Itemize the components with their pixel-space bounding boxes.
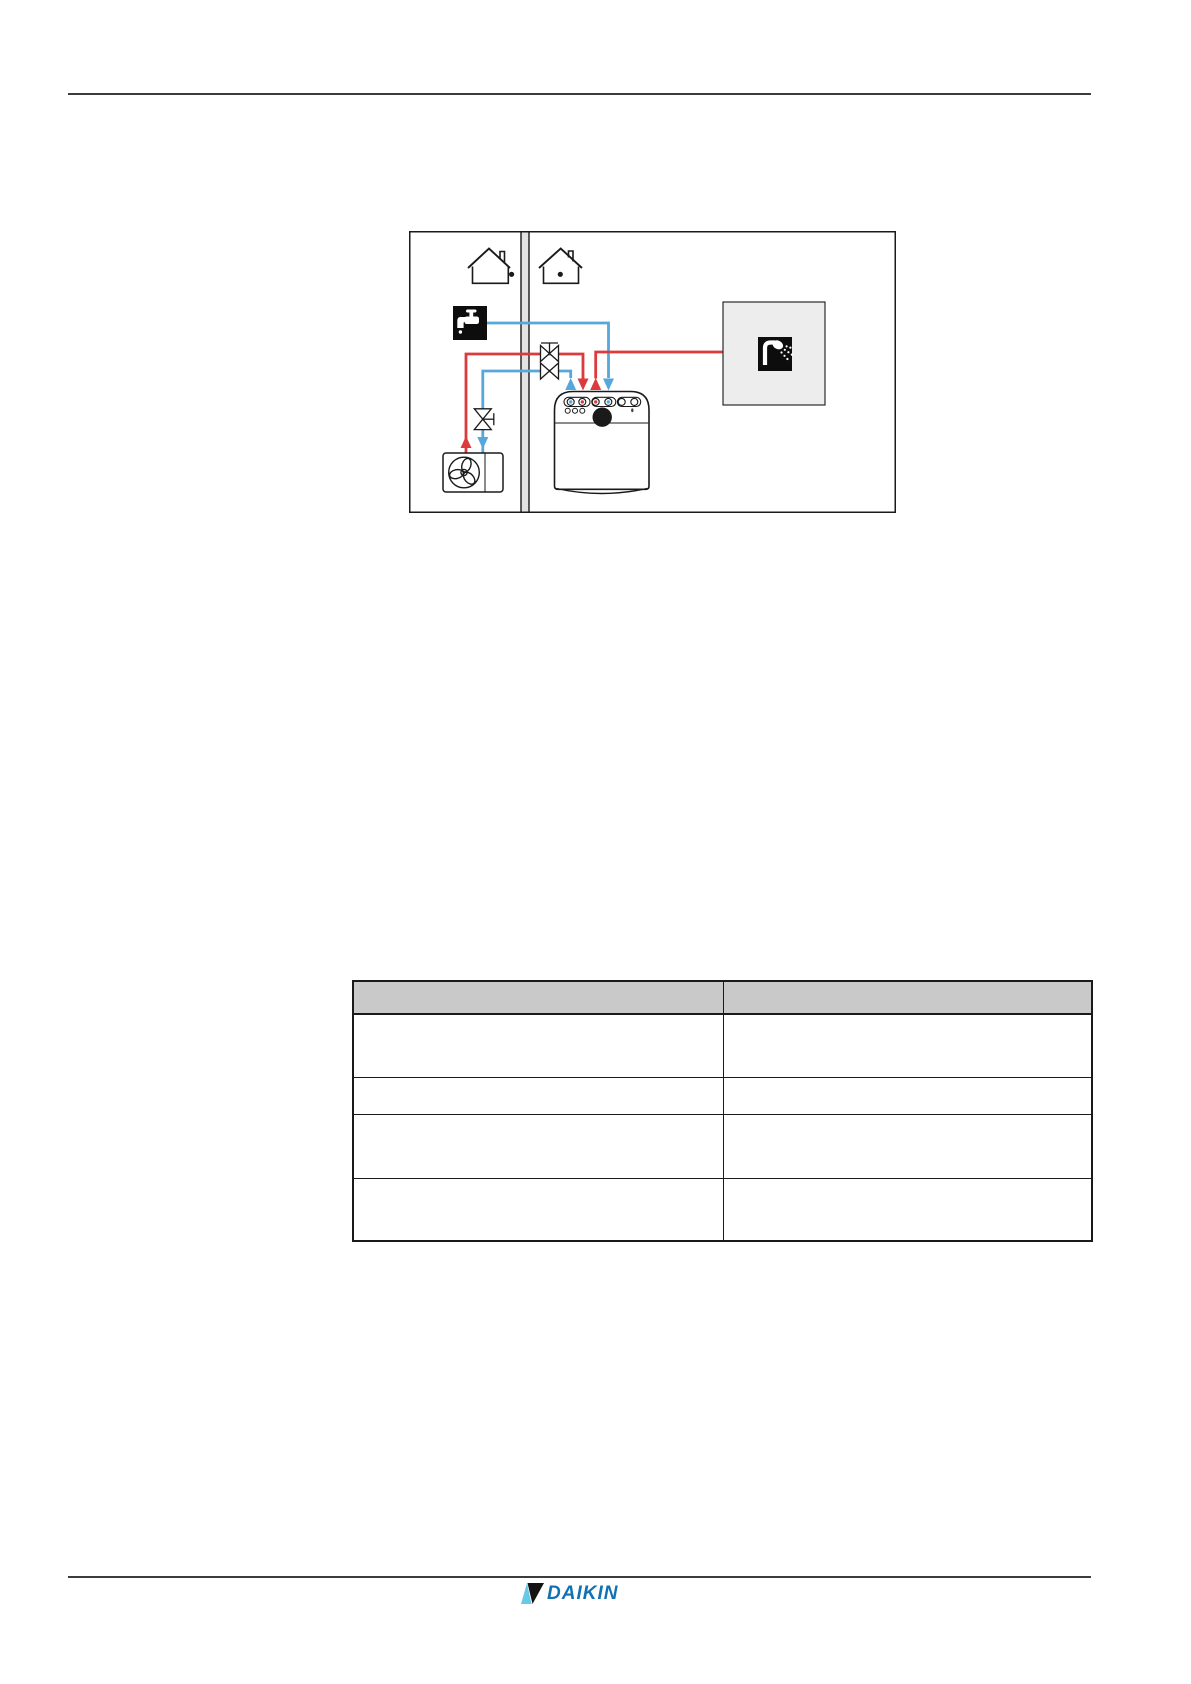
table-cell [353,1114,723,1178]
spec-table [352,980,1093,1242]
daikin-logo-mark-icon [521,1583,544,1604]
table-cell [723,1014,1092,1077]
footer-rule [68,1576,1091,1578]
table-header-cell [353,981,723,1014]
indoor-tank-unit [555,392,650,494]
outdoor-unit [443,453,503,492]
table-cell [353,1077,723,1114]
small-ports [565,408,585,413]
top-panel-opening [593,408,612,427]
table-cell [353,1014,723,1077]
table-row [353,1077,1092,1114]
table-row [353,1178,1092,1241]
shower-room [723,302,825,405]
shower-icon [758,337,793,371]
header-rule [68,93,1091,95]
page-container: DAIKIN [0,0,1191,1684]
table-cell [723,1114,1092,1178]
table-cell [723,1178,1092,1241]
table-header-cell [723,981,1092,1014]
cold-water-tap-icon [453,306,487,340]
daikin-logo-text: DAIKIN [547,1583,618,1604]
table-row [353,1014,1092,1077]
table-cell [723,1077,1092,1114]
table-row [353,1114,1092,1178]
table-cell [353,1178,723,1241]
daikin-logo: DAIKIN [521,1582,618,1604]
piping-diagram [409,231,896,513]
